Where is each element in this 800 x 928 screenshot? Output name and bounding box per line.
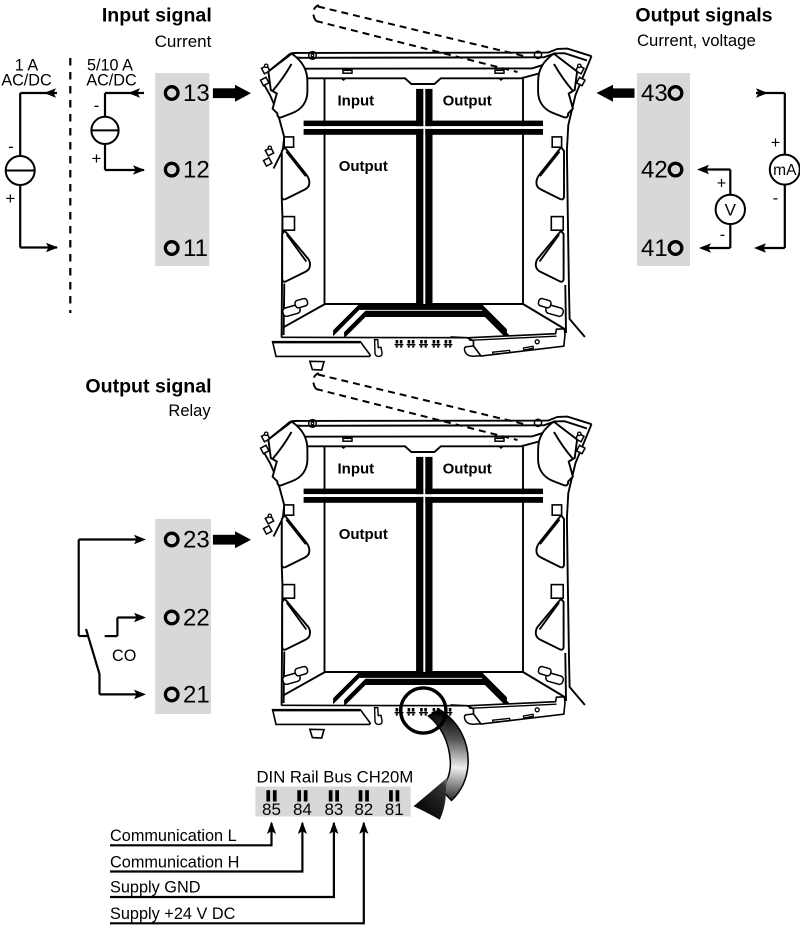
svg-text:-: - [94, 96, 100, 115]
svg-text:22: 22 [183, 605, 210, 632]
svg-text:83: 83 [324, 800, 343, 819]
svg-text:21: 21 [183, 682, 210, 709]
svg-text:Communication H: Communication H [110, 854, 239, 872]
svg-text:81: 81 [385, 800, 404, 819]
svg-text:84: 84 [293, 800, 312, 819]
svg-text:82: 82 [354, 800, 373, 819]
svg-text:85: 85 [262, 800, 281, 819]
svg-text:43: 43 [641, 80, 668, 107]
svg-text:Supply +24 V DC: Supply +24 V DC [110, 905, 236, 923]
svg-text:-: - [720, 226, 725, 244]
svg-text:+: + [92, 149, 102, 168]
svg-text:41: 41 [641, 235, 668, 262]
svg-text:-: - [8, 137, 14, 156]
svg-text:AC/DC: AC/DC [86, 72, 137, 90]
svg-text:Input signal: Input signal [102, 5, 212, 27]
svg-text:+: + [771, 134, 781, 152]
svg-text:+: + [717, 175, 727, 193]
svg-text:Output signal: Output signal [85, 376, 211, 398]
svg-text:Current: Current [155, 32, 212, 51]
svg-text:23: 23 [183, 527, 210, 554]
svg-text:+: + [5, 189, 15, 208]
svg-text:-: - [773, 190, 778, 208]
svg-text:V: V [725, 200, 737, 219]
svg-text:CO: CO [112, 647, 136, 665]
svg-text:12: 12 [183, 157, 210, 184]
svg-text:mA: mA [773, 162, 797, 179]
svg-text:DIN Rail Bus CH20M: DIN Rail Bus CH20M [257, 768, 414, 787]
svg-text:Communication L: Communication L [110, 827, 237, 845]
svg-text:Current, voltage: Current, voltage [637, 31, 756, 50]
svg-text:Supply GND: Supply GND [110, 879, 201, 897]
svg-text:AC/DC: AC/DC [1, 72, 52, 90]
svg-text:13: 13 [183, 80, 210, 107]
svg-text:Relay: Relay [168, 402, 211, 420]
svg-text:42: 42 [641, 157, 668, 184]
svg-text:Output signals: Output signals [635, 5, 772, 27]
svg-text:11: 11 [183, 235, 208, 262]
